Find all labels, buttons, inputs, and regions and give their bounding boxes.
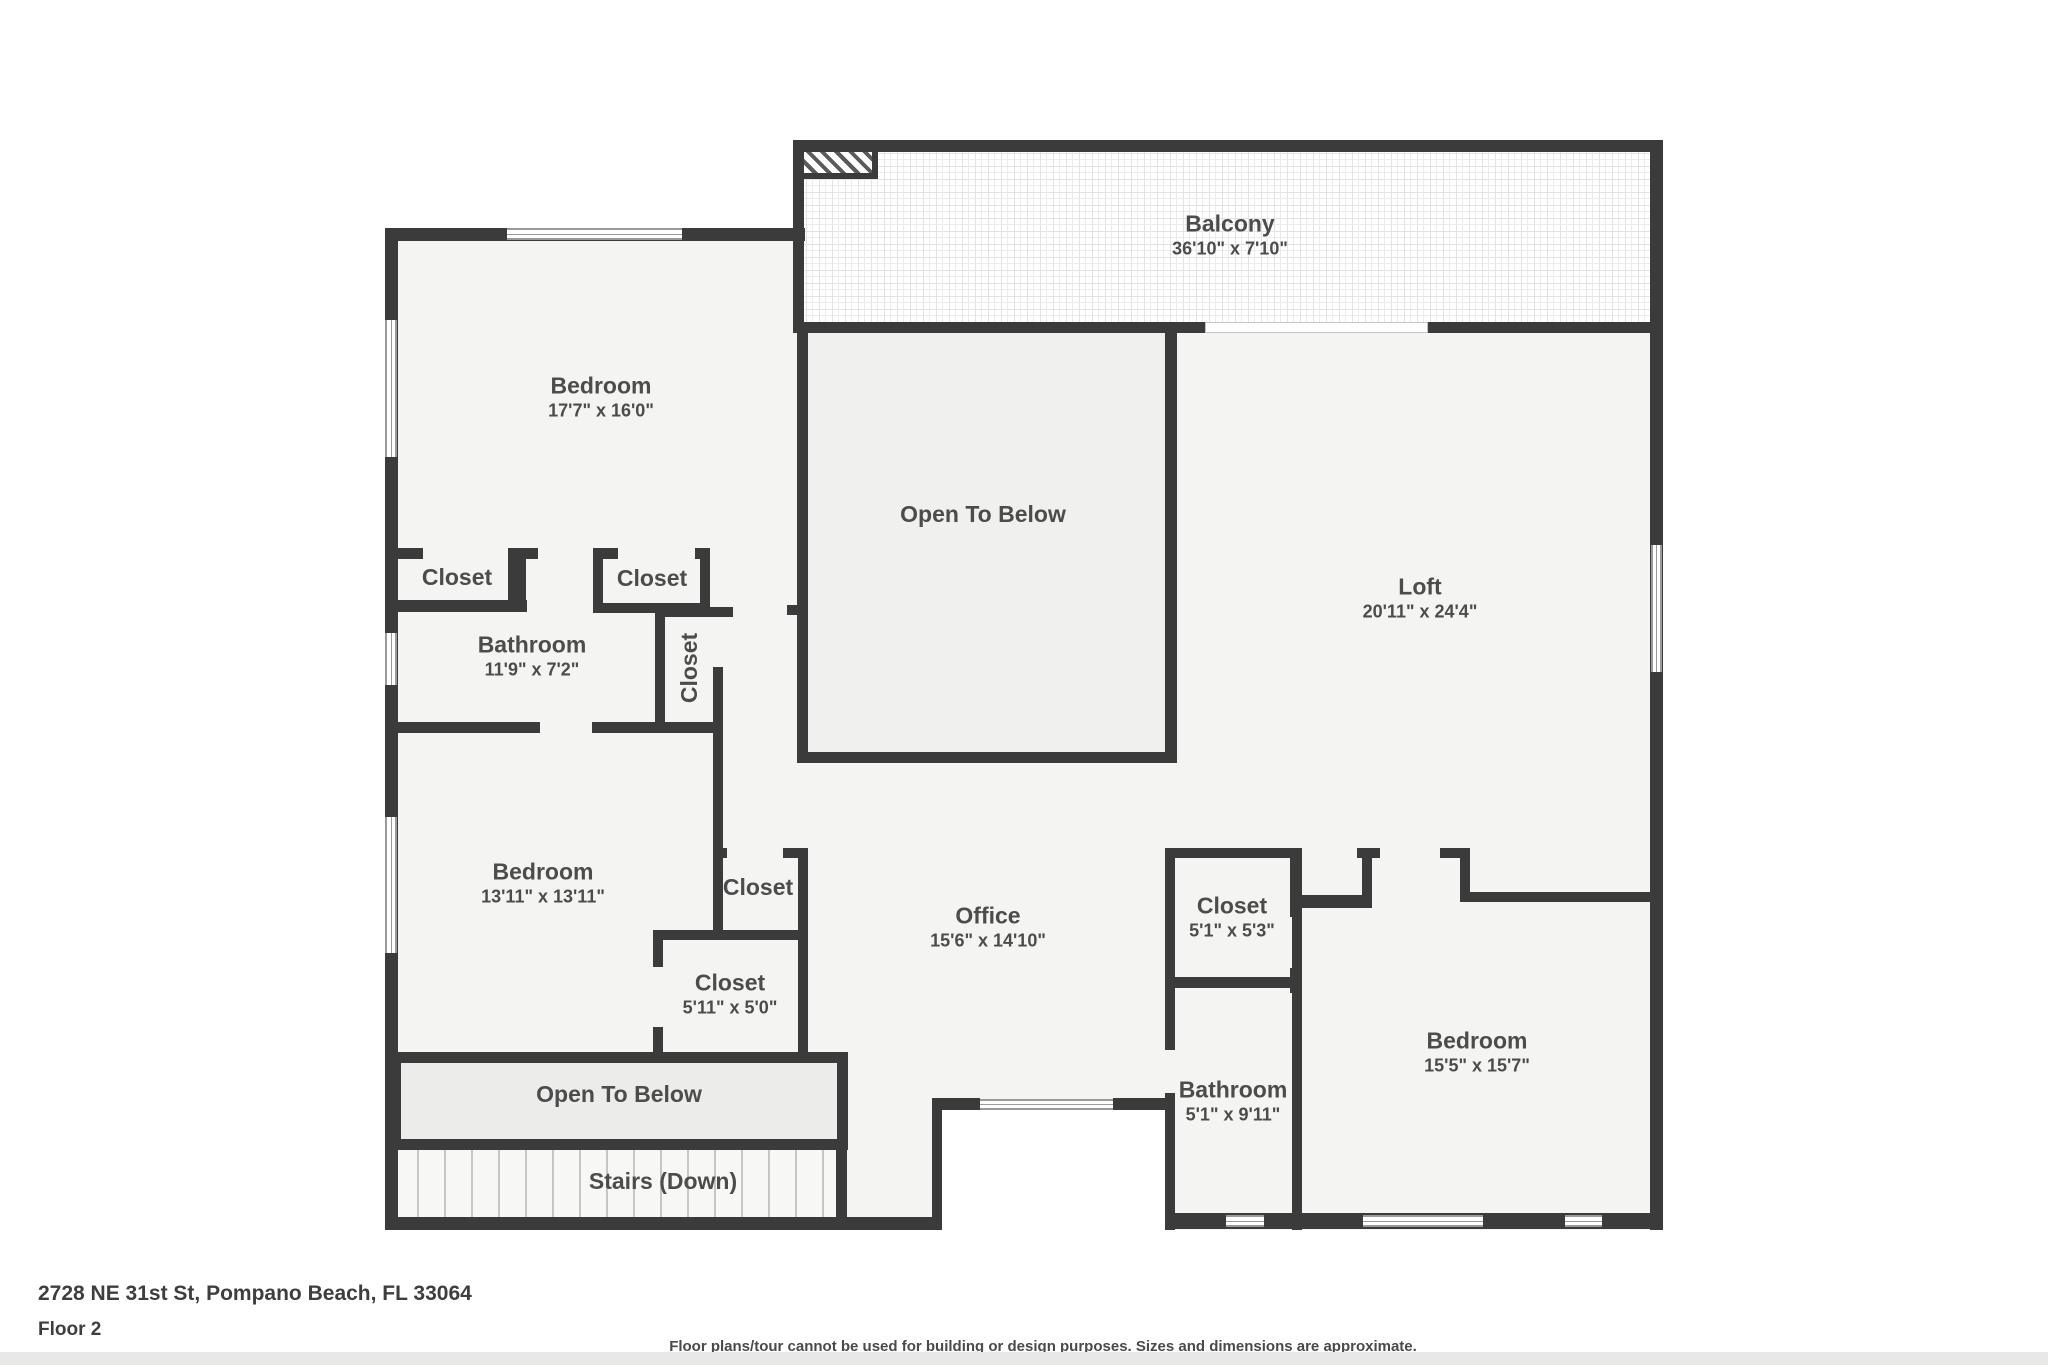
wall	[385, 600, 527, 612]
wall	[1165, 1093, 1175, 1230]
wall	[653, 930, 663, 967]
window	[1226, 1215, 1264, 1227]
room-label-closet-walkin: Closet 5'11" x 5'0"	[683, 970, 778, 1019]
wall	[592, 722, 723, 733]
room-label-office: Office 15'6" x 14'10"	[930, 903, 1046, 952]
window	[980, 1099, 1113, 1110]
wall	[713, 667, 723, 848]
window	[1651, 545, 1662, 672]
wall	[1165, 848, 1175, 988]
wall	[655, 607, 733, 617]
wall	[836, 1143, 847, 1220]
window	[1363, 1215, 1483, 1227]
balcony-opening	[1205, 322, 1428, 333]
room-label-bathroom-left: Bathroom 11'9" x 7'2"	[478, 632, 587, 681]
floor-label: Floor 2	[38, 1319, 101, 1341]
wall	[932, 1098, 942, 1230]
wall	[1165, 988, 1175, 1050]
room-label-bedroom-top-left: Bedroom 17'7" x 16'0"	[548, 373, 654, 422]
room-label-closet-small: Closet	[723, 874, 793, 900]
window	[385, 633, 397, 685]
room-label-stairs: Stairs (Down)	[589, 1168, 737, 1194]
window	[385, 320, 397, 457]
wall	[653, 930, 808, 940]
address-text: 2728 NE 31st St, Pompano Beach, FL 33064	[38, 1282, 472, 1306]
wall	[1460, 892, 1662, 902]
room-label-bathroom-right: Bathroom 5'1" x 9'11"	[1179, 1077, 1288, 1126]
window	[385, 817, 397, 953]
wall	[798, 848, 808, 940]
wall	[797, 752, 1177, 763]
open-to-below-center-area	[808, 333, 1165, 752]
wall	[1165, 848, 1302, 858]
wall	[1362, 848, 1372, 908]
wall	[1165, 977, 1302, 988]
wall	[1290, 895, 1372, 908]
floor-plan: Balcony 36'10" x 7'10" Bedroom 17'7" x 1…	[0, 0, 2048, 1365]
room-label-closet-bedroom-right: Closet 5'1" x 5'3"	[1189, 893, 1275, 942]
wall	[653, 1027, 663, 1052]
wall	[385, 1217, 942, 1230]
wall	[385, 548, 423, 559]
wall	[1428, 322, 1662, 333]
wall	[655, 612, 665, 733]
room-label-bedroom-mid-left: Bedroom 13'11" x 13'11"	[481, 859, 605, 908]
room-label-open-to-below-center: Open To Below	[900, 501, 1066, 527]
room-label-closet-vertical: Closet	[676, 633, 702, 703]
wall	[1292, 895, 1302, 1230]
wall	[385, 722, 540, 733]
wall	[1165, 323, 1177, 763]
wall	[793, 140, 1663, 152]
window	[1565, 1215, 1602, 1227]
room-label-balcony: Balcony 36'10" x 7'10"	[1172, 211, 1288, 260]
window	[507, 228, 682, 240]
wall	[793, 322, 1205, 333]
room-label-closet-left: Closet	[422, 564, 492, 590]
wall	[1650, 140, 1663, 1230]
wall	[798, 940, 808, 1052]
wall	[797, 323, 808, 763]
room-label-open-to-below-bottom: Open To Below	[536, 1081, 702, 1107]
bottom-bar	[0, 1352, 2048, 1365]
room-label-bedroom-bottom-right: Bedroom 15'5" x 15'7"	[1424, 1028, 1530, 1077]
wall	[793, 140, 804, 333]
wall	[713, 848, 723, 940]
room-label-closet-mid: Closet	[617, 565, 687, 591]
room-label-loft: Loft 20'11" x 24'4"	[1363, 574, 1478, 623]
